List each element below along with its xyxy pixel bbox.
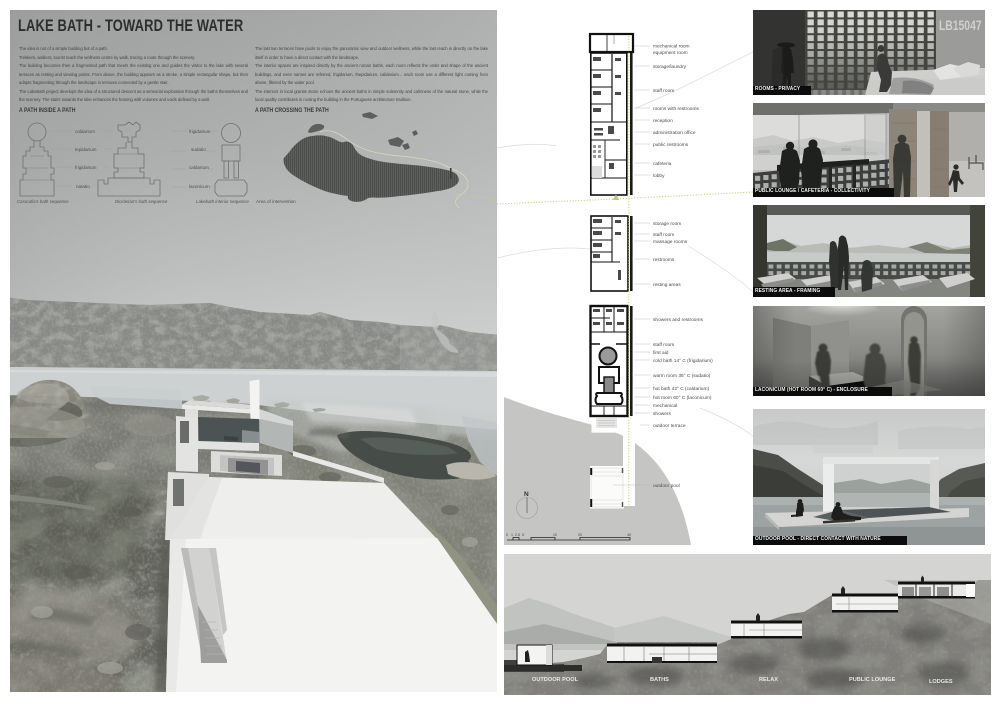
svg-text:OUTDOOR POOL: OUTDOOR POOL xyxy=(532,677,579,683)
svg-text:public restrooms: public restrooms xyxy=(653,142,689,148)
svg-text:equipment room: equipment room xyxy=(653,50,688,56)
svg-text:storage room: storage room xyxy=(653,221,681,227)
svg-text:storage/laundry: storage/laundry xyxy=(653,64,687,70)
svg-text:staff room: staff room xyxy=(653,88,674,94)
svg-text:outdoor pool: outdoor pool xyxy=(653,483,680,489)
svg-text:mechanical room: mechanical room xyxy=(653,44,690,50)
svg-text:caldarium: caldarium xyxy=(75,129,95,134)
svg-text:10: 10 xyxy=(553,533,557,537)
svg-text:hot bath 42° C (caldarium): hot bath 42° C (caldarium) xyxy=(653,386,709,392)
svg-text:reception: reception xyxy=(653,118,673,124)
svg-text:restrooms: restrooms xyxy=(653,257,675,263)
svg-text:40: 40 xyxy=(627,533,631,537)
svg-text:5: 5 xyxy=(522,533,524,537)
svg-text:RELAX: RELAX xyxy=(759,677,778,683)
svg-text:cold bath 14° C (frigidarium): cold bath 14° C (frigidarium) xyxy=(653,358,713,364)
svg-text:showers and restrooms: showers and restrooms xyxy=(653,317,703,323)
svg-text:staff room: staff room xyxy=(653,232,674,238)
svg-text:Area of intervention: Area of intervention xyxy=(256,199,296,204)
svg-text:hot room 60° C (laconicum): hot room 60° C (laconicum) xyxy=(653,395,712,401)
svg-text:N: N xyxy=(524,491,529,498)
svg-text:natatio: natatio xyxy=(76,184,90,189)
svg-text:0: 0 xyxy=(506,533,508,537)
svg-text:cafeteria: cafeteria xyxy=(653,161,672,167)
svg-text:warm room 35° C (sudatio): warm room 35° C (sudatio) xyxy=(653,373,711,379)
svg-text:tepidarium: tepidarium xyxy=(75,147,97,152)
svg-text:2.5: 2.5 xyxy=(515,533,520,537)
svg-text:mechanical: mechanical xyxy=(653,403,677,409)
svg-text:rooms with restrooms: rooms with restrooms xyxy=(653,106,699,112)
svg-text:caldarium: caldarium xyxy=(189,165,209,170)
svg-text:LODGES: LODGES xyxy=(929,679,953,685)
svg-text:resting areas: resting areas xyxy=(653,282,681,288)
svg-text:laconicum: laconicum xyxy=(189,184,210,189)
svg-text:first aid: first aid xyxy=(653,350,669,356)
svg-text:frigidarium: frigidarium xyxy=(75,165,97,170)
svg-text:BATHS: BATHS xyxy=(650,677,669,683)
svg-text:frigidarium: frigidarium xyxy=(189,129,211,134)
svg-text:lobby: lobby xyxy=(653,173,665,179)
svg-text:administration office: administration office xyxy=(653,130,696,136)
svg-text:PUBLIC LOUNGE: PUBLIC LOUNGE xyxy=(849,677,896,683)
svg-text:massage rooms: massage rooms xyxy=(653,239,688,245)
svg-text:20: 20 xyxy=(578,533,582,537)
svg-text:staff room: staff room xyxy=(653,342,674,348)
svg-text:sudatio: sudatio xyxy=(191,147,206,152)
svg-text:Lakebath interior sequence: Lakebath interior sequence xyxy=(196,199,250,204)
svg-text:outdoor terrace: outdoor terrace xyxy=(653,423,686,429)
svg-text:1: 1 xyxy=(511,533,513,537)
svg-text:showers: showers xyxy=(653,411,671,417)
svg-text:Caracalla's bath sequence: Caracalla's bath sequence xyxy=(17,199,69,204)
svg-text:Diocletian's bath sequence: Diocletian's bath sequence xyxy=(115,199,168,204)
